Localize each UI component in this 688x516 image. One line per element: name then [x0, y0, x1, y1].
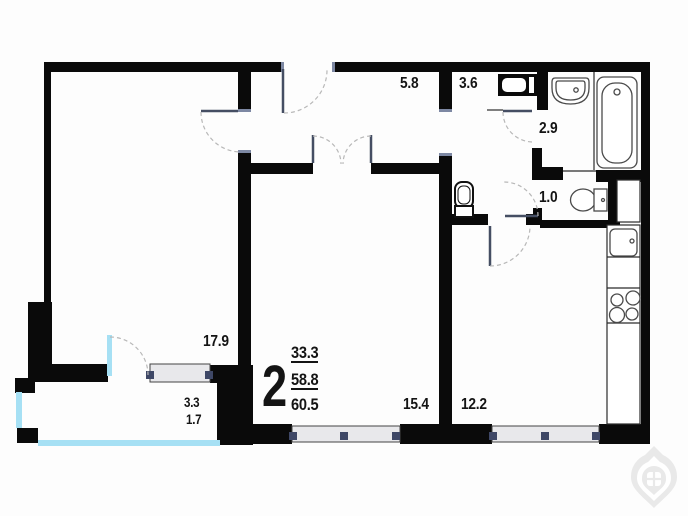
wc-area-label: 1.0 — [539, 190, 557, 206]
bathroom-door-arc — [503, 112, 533, 142]
kitchen-window-icon — [489, 426, 600, 442]
living-room-window-icon — [289, 426, 400, 442]
developer-logo-pin-icon — [631, 446, 677, 508]
wc-door-arc — [504, 182, 538, 216]
washing-machine-icon — [498, 74, 538, 96]
bathroom-small-area-label: 3.6 — [459, 76, 477, 92]
living-area-value: 33.3 — [291, 344, 318, 361]
living-door-arc-right — [343, 136, 371, 164]
kitchen-door-arc — [490, 226, 530, 266]
entrance-door-arc — [284, 70, 327, 113]
hallway-area-label: 5.8 — [400, 76, 418, 92]
total-area-value: 60.5 — [291, 396, 318, 413]
living-door-arc-left — [313, 136, 341, 164]
floor-plan: 5.8 3.6 2.9 1.0 17.9 15.4 12.2 3.3 1.7 2… — [0, 0, 688, 516]
apartment-area-value: 58.8 — [291, 371, 318, 388]
bedroom-area-label: 17.9 — [203, 334, 229, 350]
sink-icon — [552, 78, 589, 104]
living-room-area-label: 15.4 — [403, 397, 429, 413]
bathtub-icon — [597, 77, 637, 168]
corridor-toilet-icon — [455, 182, 473, 217]
kitchen-area-label: 12.2 — [461, 397, 487, 413]
bathroom-area-label: 2.9 — [539, 121, 557, 137]
bedroom-door-arc — [201, 112, 241, 152]
balcony-door-arc — [110, 337, 148, 375]
balcony-area-reduced-label: 1.7 — [186, 413, 201, 427]
summary-divider — [291, 388, 318, 390]
floor-plan-drawing — [0, 0, 688, 516]
door-jambs — [238, 62, 452, 156]
rooms-count-label: 2 — [262, 361, 286, 413]
kitchen-sink-icon — [610, 229, 637, 256]
bedroom-balcony-window-icon — [146, 364, 213, 382]
balcony-area-label: 3.3 — [184, 396, 199, 410]
toilet-icon — [571, 189, 608, 211]
summary-divider — [291, 361, 318, 363]
